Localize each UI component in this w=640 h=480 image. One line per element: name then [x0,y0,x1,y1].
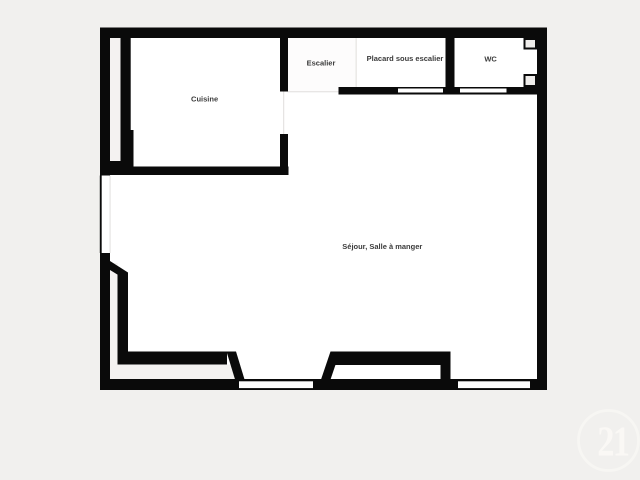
svg-text:Séjour, Salle à manger: Séjour, Salle à manger [342,242,422,251]
svg-text:Placard sous escalier: Placard sous escalier [367,54,444,63]
svg-text:Cuisine: Cuisine [191,95,218,104]
svg-text:WC: WC [484,54,497,63]
svg-text:Escalier: Escalier [307,58,336,67]
svg-text:21: 21 [597,419,629,465]
